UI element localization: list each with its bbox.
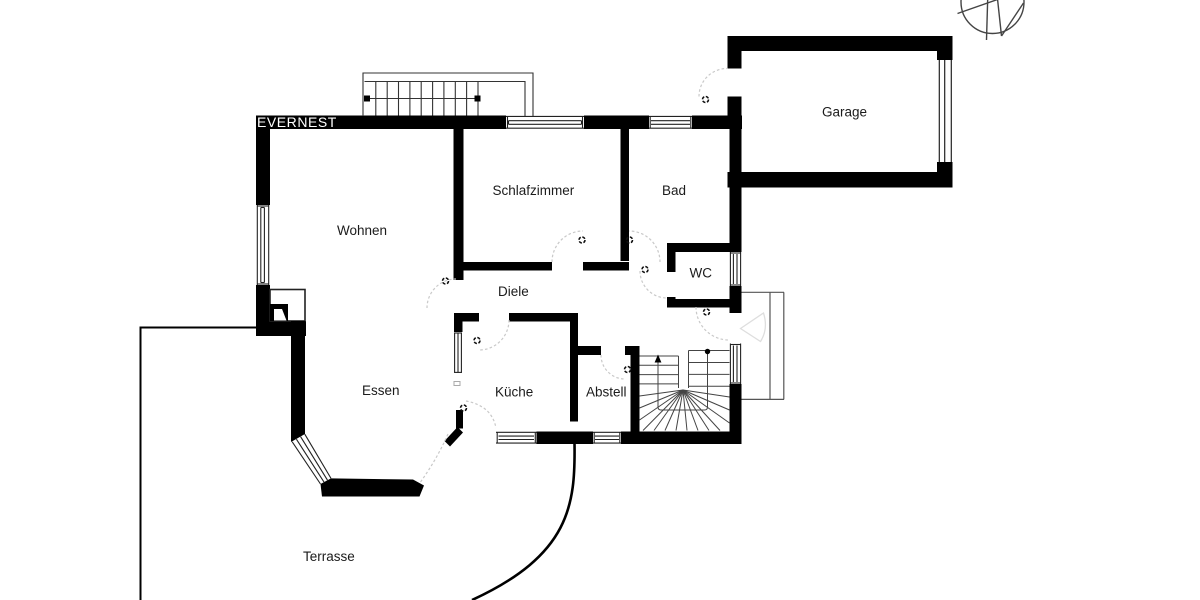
svg-text:Abstell: Abstell — [586, 385, 627, 400]
svg-text:Terrasse: Terrasse — [303, 549, 355, 564]
svg-text:Diele: Diele — [498, 284, 529, 299]
svg-text:Wohnen: Wohnen — [337, 223, 387, 238]
svg-text:Essen: Essen — [362, 383, 400, 398]
svg-text:Küche: Küche — [495, 385, 533, 400]
svg-text:Garage: Garage — [822, 105, 867, 120]
svg-text:Bad: Bad — [662, 183, 686, 198]
svg-text:WC: WC — [690, 266, 713, 281]
svg-text:Schlafzimmer: Schlafzimmer — [493, 183, 575, 198]
svg-text:EVERNEST: EVERNEST — [257, 114, 337, 130]
